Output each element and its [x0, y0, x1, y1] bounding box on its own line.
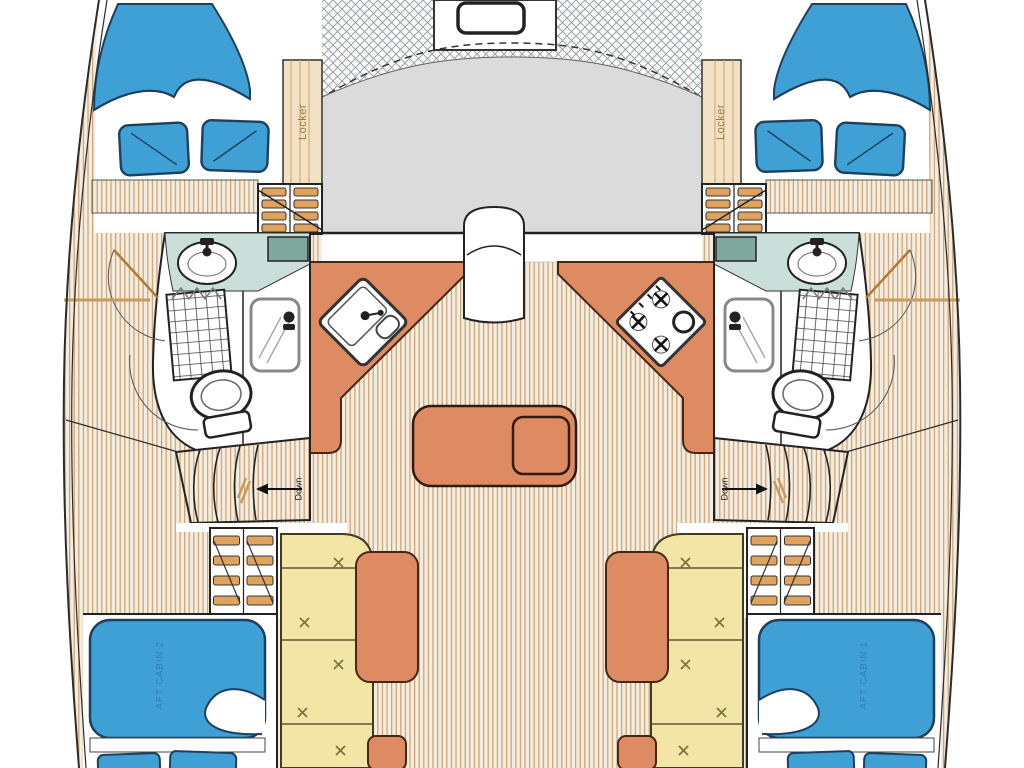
saloon-table — [413, 406, 576, 486]
entry-door — [464, 207, 524, 323]
down-label-port: Down — [293, 477, 303, 500]
down-label-starboard: Down — [719, 477, 729, 500]
aft-cabin-label-starboard: AFT CABIN 1 — [859, 641, 870, 709]
locker-label-port: Locker — [297, 104, 309, 140]
floor-plan-page: Locker Locker Down Down AFT CABIN 2 AFT … — [0, 0, 1024, 768]
coachroof-deck — [322, 57, 702, 233]
aft-cabin-label-port: AFT CABIN 2 — [155, 641, 166, 709]
catamaran-floor-plan: Locker Locker Down Down AFT CABIN 2 AFT … — [0, 0, 1024, 768]
deck-hatch — [458, 3, 524, 33]
locker-label-starboard: Locker — [715, 104, 727, 140]
